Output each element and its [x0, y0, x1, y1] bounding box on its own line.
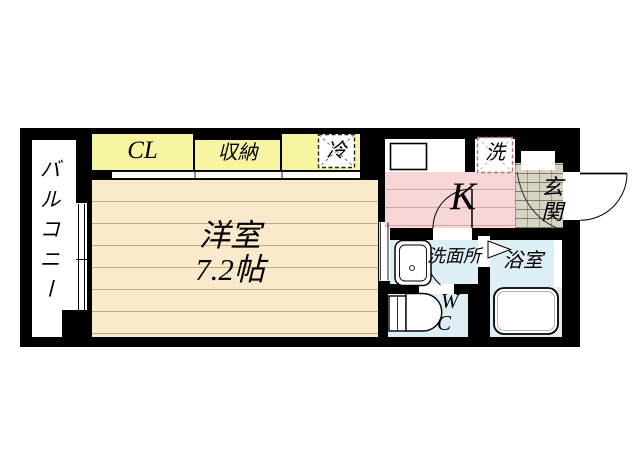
main-room-label: 洋室 7.2帖 — [150, 219, 310, 287]
bathroom-counter — [554, 240, 562, 287]
toilet-label-c: C — [437, 312, 451, 334]
wall-stub — [62, 310, 92, 347]
main-room-name: 洋室 — [150, 219, 310, 253]
bathroom-label: 浴室 — [497, 251, 549, 272]
washroom-label: 洗面所 — [427, 247, 481, 266]
kitchen-counter — [385, 139, 465, 172]
room-kitchen-door — [379, 222, 390, 281]
toilet-label-w: W — [441, 290, 459, 312]
kitchen-label: K — [437, 177, 489, 218]
floorplan-canvas: バルコニー CL 収納 冷 洗 K 玄関 洋室 7.2帖 洗面所 浴室 W C — [0, 0, 640, 455]
main-room-size: 7.2帖 — [150, 253, 310, 287]
storage-label: 収納 — [195, 143, 280, 164]
balcony-window — [76, 203, 87, 317]
closet-sliding-track — [112, 171, 360, 179]
refrigerator-label: 冷 — [318, 141, 355, 162]
closet-label: CL — [92, 138, 193, 164]
entrance-label: 玄関 — [539, 175, 562, 225]
shoe-cabinet — [521, 151, 555, 170]
balcony-label: バルコニー — [38, 158, 60, 308]
laundry-label: 洗 — [477, 143, 513, 164]
